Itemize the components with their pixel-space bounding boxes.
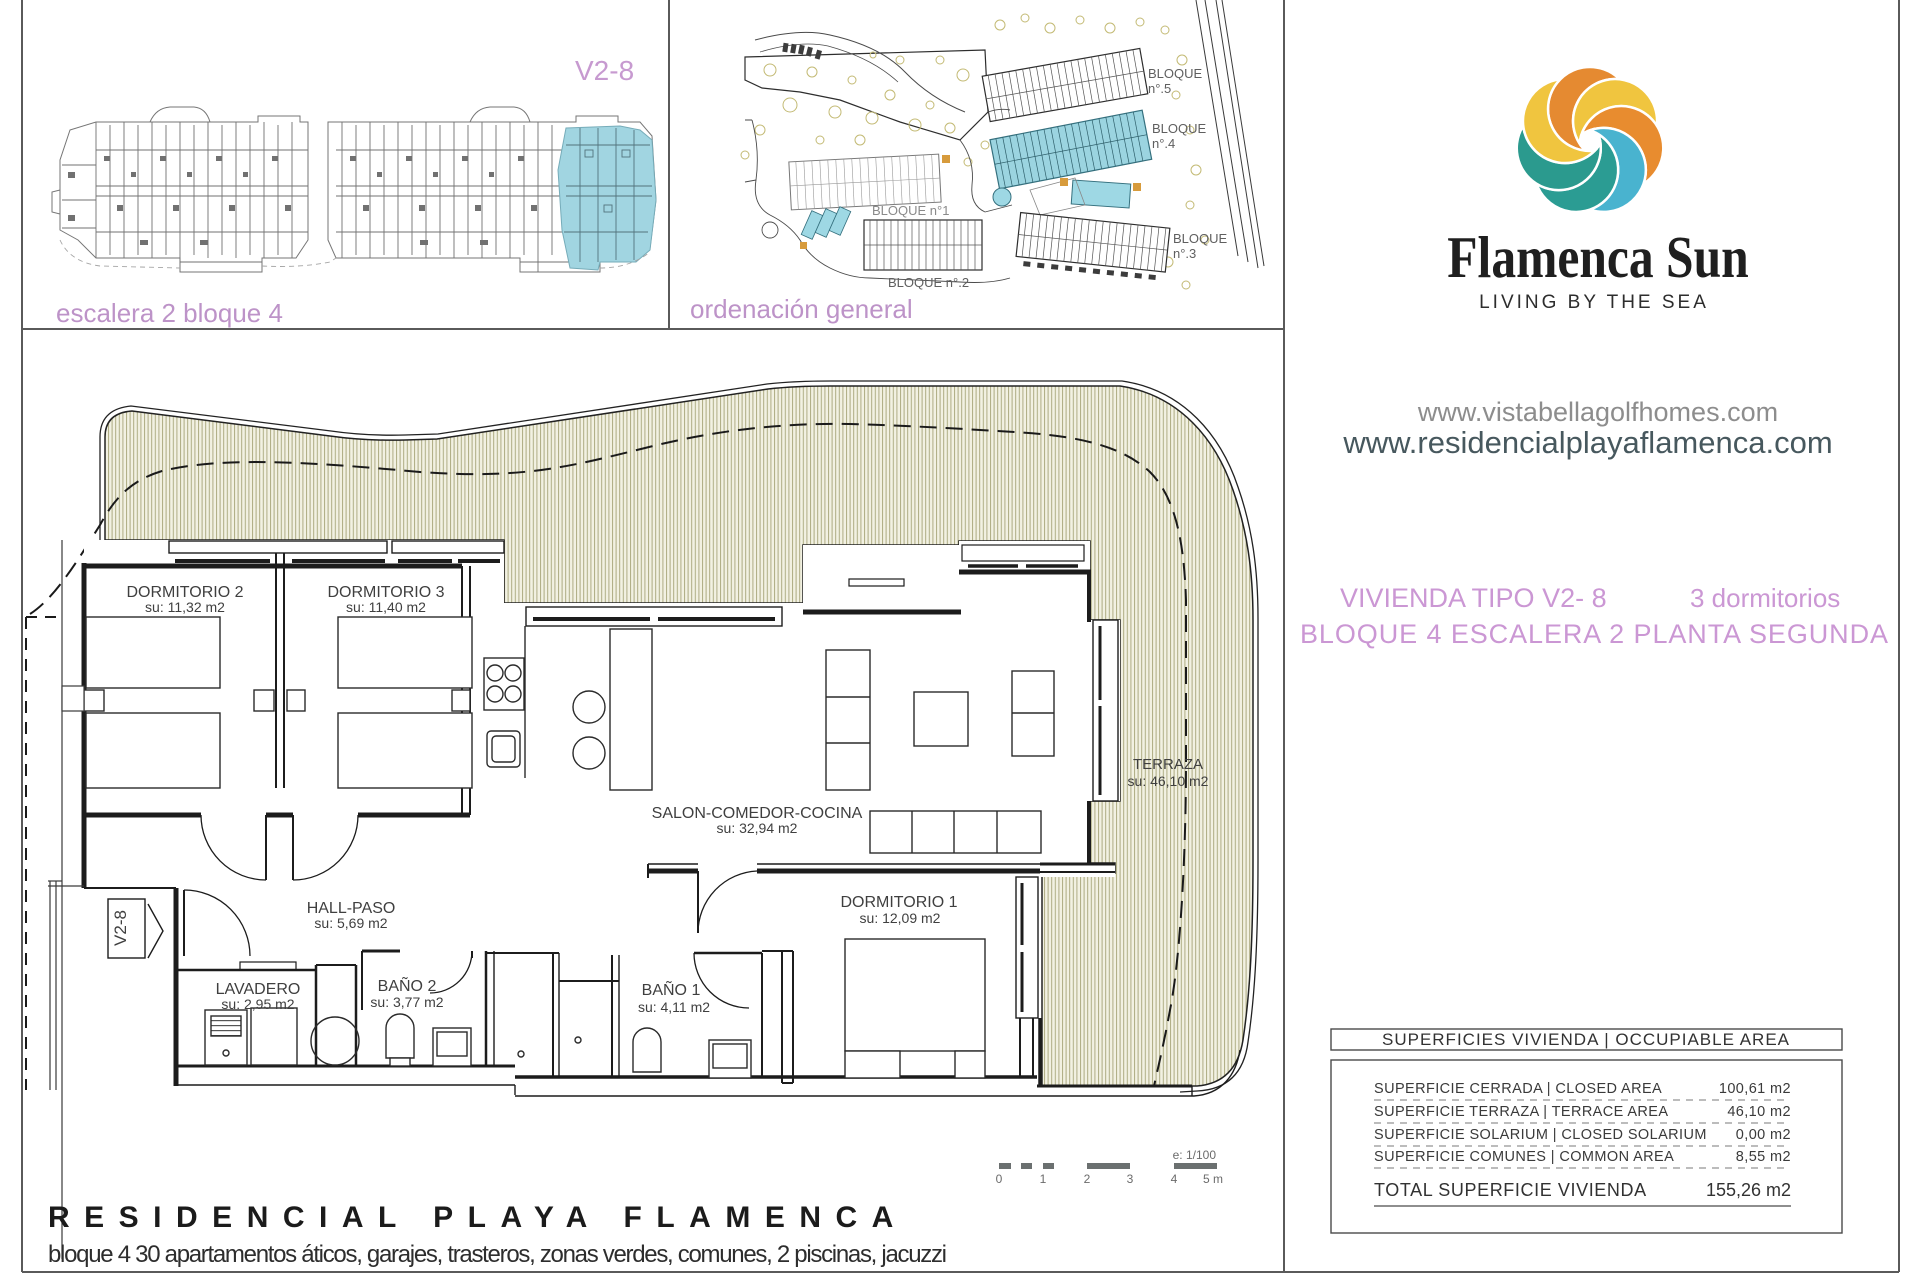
svg-text:TERRAZA: TERRAZA xyxy=(1133,756,1203,773)
svg-text:su: 2,95 m2: su: 2,95 m2 xyxy=(221,996,294,1012)
svg-text:BLOQUE: BLOQUE xyxy=(1152,121,1207,136)
svg-text:VIVIENDA TIPO V2- 8: VIVIENDA TIPO V2- 8 xyxy=(1340,583,1607,613)
svg-text:0,00 m2: 0,00 m2 xyxy=(1736,1127,1791,1143)
svg-text:SUPERFICIE TERRAZA | TERRA: SUPERFICIE TERRAZA | TERRACE AREA xyxy=(1374,1104,1668,1120)
svg-text:BLOQUE 4 ESCALERA 2 PLANTA S: BLOQUE 4 ESCALERA 2 PLANTA SEGUNDA xyxy=(1300,619,1888,649)
svg-text:BAÑO 1: BAÑO 1 xyxy=(642,979,701,999)
svg-text:su: 3,77 m2: su: 3,77 m2 xyxy=(370,994,443,1010)
svg-text:3 dormitorios: 3 dormitorios xyxy=(1690,583,1840,613)
svg-text:BLOQUE: BLOQUE xyxy=(1148,66,1203,81)
svg-text:www.residencialplayaflamenca.c: www.residencialplayaflamenca.com xyxy=(1342,425,1832,460)
svg-text:BLOQUE n°1: BLOQUE n°1 xyxy=(872,203,949,218)
svg-text:V2-8: V2-8 xyxy=(575,55,634,86)
svg-text:su: 4,11 m2: su: 4,11 m2 xyxy=(638,999,710,1015)
svg-text:100,61 m2: 100,61 m2 xyxy=(1719,1081,1791,1097)
svg-text:SUPERFICIE SOLARIUM | CLOSED: SUPERFICIE SOLARIUM | CLOSED SOLARIUM xyxy=(1374,1127,1707,1143)
svg-text:BLOQUE n°.2: BLOQUE n°.2 xyxy=(888,275,969,290)
svg-text:5 m: 5 m xyxy=(1203,1172,1223,1186)
svg-text:su: 11,32 m2: su: 11,32 m2 xyxy=(145,599,225,615)
svg-text:SUPERFICIES VIVIENDA | OCCUPIA: SUPERFICIES VIVIENDA | OCCUPIABLE AREA xyxy=(1382,1030,1790,1049)
svg-text:1: 1 xyxy=(1040,1172,1047,1186)
svg-text:su: 46,10 m2: su: 46,10 m2 xyxy=(1128,773,1209,789)
svg-text:bloque 4 30 apartamentos ático: bloque 4 30 apartamentos áticos, garajes… xyxy=(48,1241,947,1268)
svg-text:LIVING BY THE SEA: LIVING BY THE SEA xyxy=(1479,292,1709,313)
svg-text:3: 3 xyxy=(1127,1172,1134,1186)
svg-text:su: 5,69 m2: su: 5,69 m2 xyxy=(314,915,387,931)
svg-text:www.vistabellagolfhomes.com: www.vistabellagolfhomes.com xyxy=(1417,397,1778,427)
svg-text:46,10 m2: 46,10 m2 xyxy=(1727,1104,1791,1120)
svg-text:n°.4: n°.4 xyxy=(1152,136,1175,151)
svg-text:SUPERFICIE CERRADA | CLOSED: SUPERFICIE CERRADA | CLOSED AREA xyxy=(1374,1081,1662,1097)
svg-text:escalera 2 bloque 4: escalera 2 bloque 4 xyxy=(56,298,283,328)
svg-text:BAÑO 2: BAÑO 2 xyxy=(378,975,437,995)
svg-text:Flamenca Sun: Flamenca Sun xyxy=(1447,224,1748,290)
svg-text:TOTAL SUPERFICIE VIVIENDA: TOTAL SUPERFICIE VIVIENDA xyxy=(1374,1180,1647,1200)
svg-text:e: 1/100: e: 1/100 xyxy=(1173,1148,1217,1162)
svg-text:8,55 m2: 8,55 m2 xyxy=(1736,1149,1791,1165)
svg-text:su: 11,40 m2: su: 11,40 m2 xyxy=(346,599,426,615)
svg-text:n°.3: n°.3 xyxy=(1173,246,1196,261)
svg-text:2: 2 xyxy=(1084,1172,1091,1186)
svg-text:ordenación general: ordenación general xyxy=(690,294,913,324)
svg-text:SUPERFICIE COMUNES | COMMON A: SUPERFICIE COMUNES | COMMON AREA xyxy=(1374,1149,1674,1165)
svg-text:su: 32,94 m2: su: 32,94 m2 xyxy=(717,820,798,836)
svg-text:DORMITORIO 1: DORMITORIO 1 xyxy=(840,894,957,911)
svg-text:su: 12,09 m2: su: 12,09 m2 xyxy=(860,910,941,926)
svg-text:RESIDENCIAL PLAYA FLAMENCA: RESIDENCIAL PLAYA FLAMENCA xyxy=(48,1201,908,1234)
svg-text:155,26 m2: 155,26 m2 xyxy=(1706,1180,1791,1200)
svg-text:0: 0 xyxy=(996,1172,1003,1186)
svg-text:n°.5: n°.5 xyxy=(1148,81,1171,96)
svg-text:4: 4 xyxy=(1171,1172,1178,1186)
svg-text:BLOQUE: BLOQUE xyxy=(1173,231,1228,246)
svg-text:V2-8: V2-8 xyxy=(111,910,130,946)
